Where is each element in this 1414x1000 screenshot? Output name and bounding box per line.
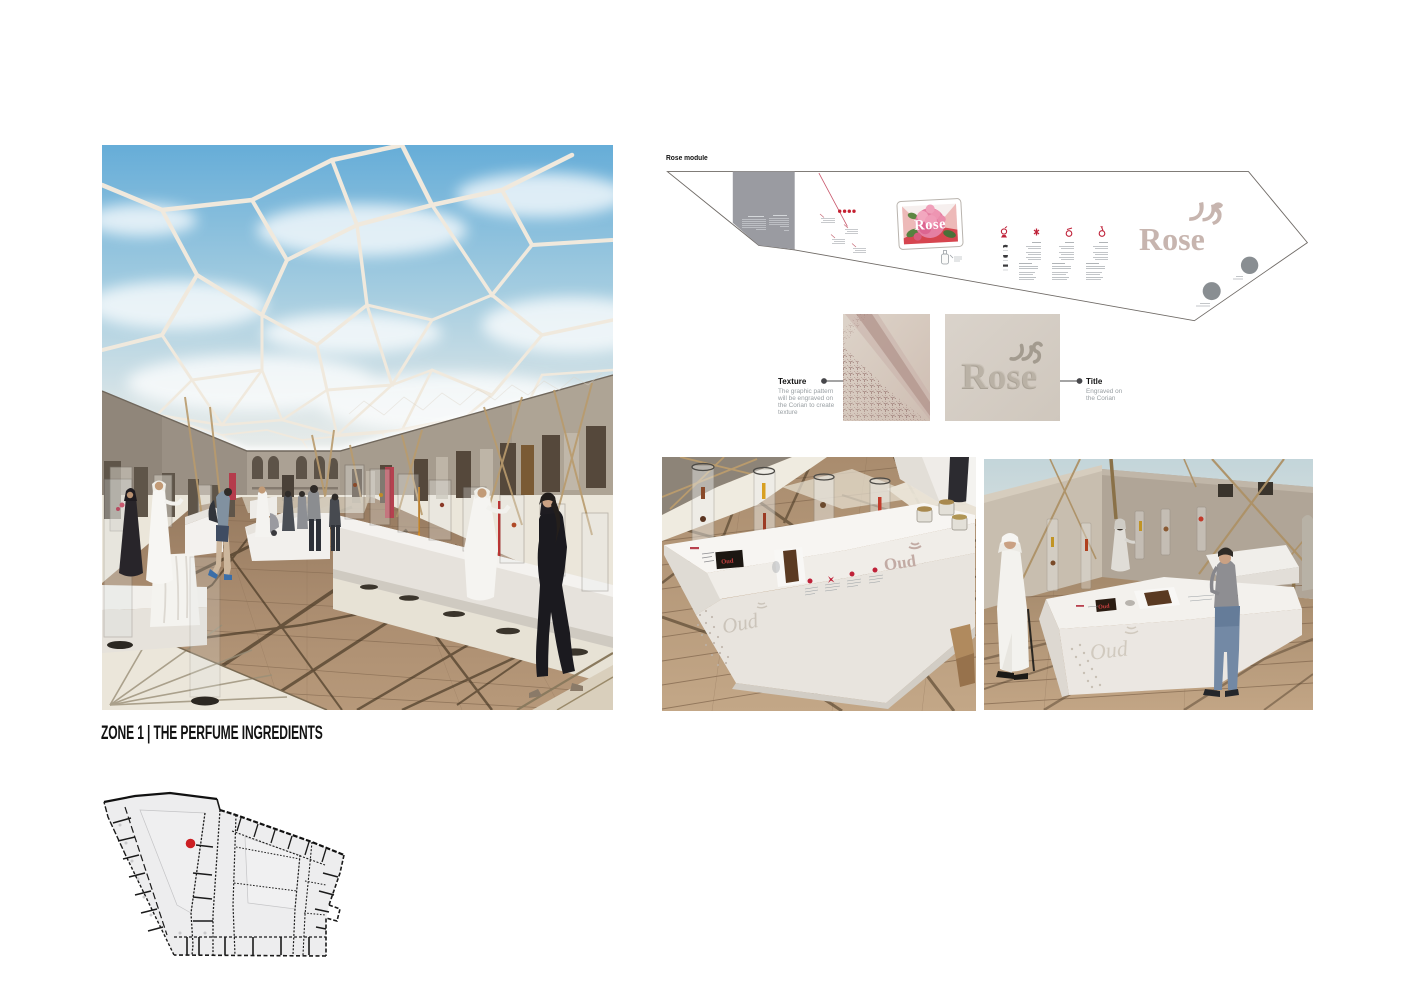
- svg-text:Rose: Rose: [1139, 221, 1205, 257]
- svg-text:Oud: Oud: [721, 558, 734, 566]
- svg-text:Rose: Rose: [914, 216, 947, 234]
- svg-text:Rose: Rose: [962, 356, 1038, 397]
- svg-text:Engraved on: Engraved on: [1086, 388, 1123, 395]
- svg-text:texture: texture: [778, 409, 798, 416]
- svg-text:Texture: Texture: [778, 377, 807, 386]
- svg-text:Title: Title: [1086, 377, 1103, 386]
- svg-text:Oud: Oud: [1088, 635, 1130, 665]
- svg-text:the Corian: the Corian: [1086, 395, 1116, 402]
- svg-text:The graphic pattern: The graphic pattern: [778, 388, 834, 395]
- svg-text:the Corian to create: the Corian to create: [778, 402, 835, 409]
- svg-text:will be engraved on: will be engraved on: [777, 395, 834, 402]
- svg-text:Oud: Oud: [1098, 604, 1111, 611]
